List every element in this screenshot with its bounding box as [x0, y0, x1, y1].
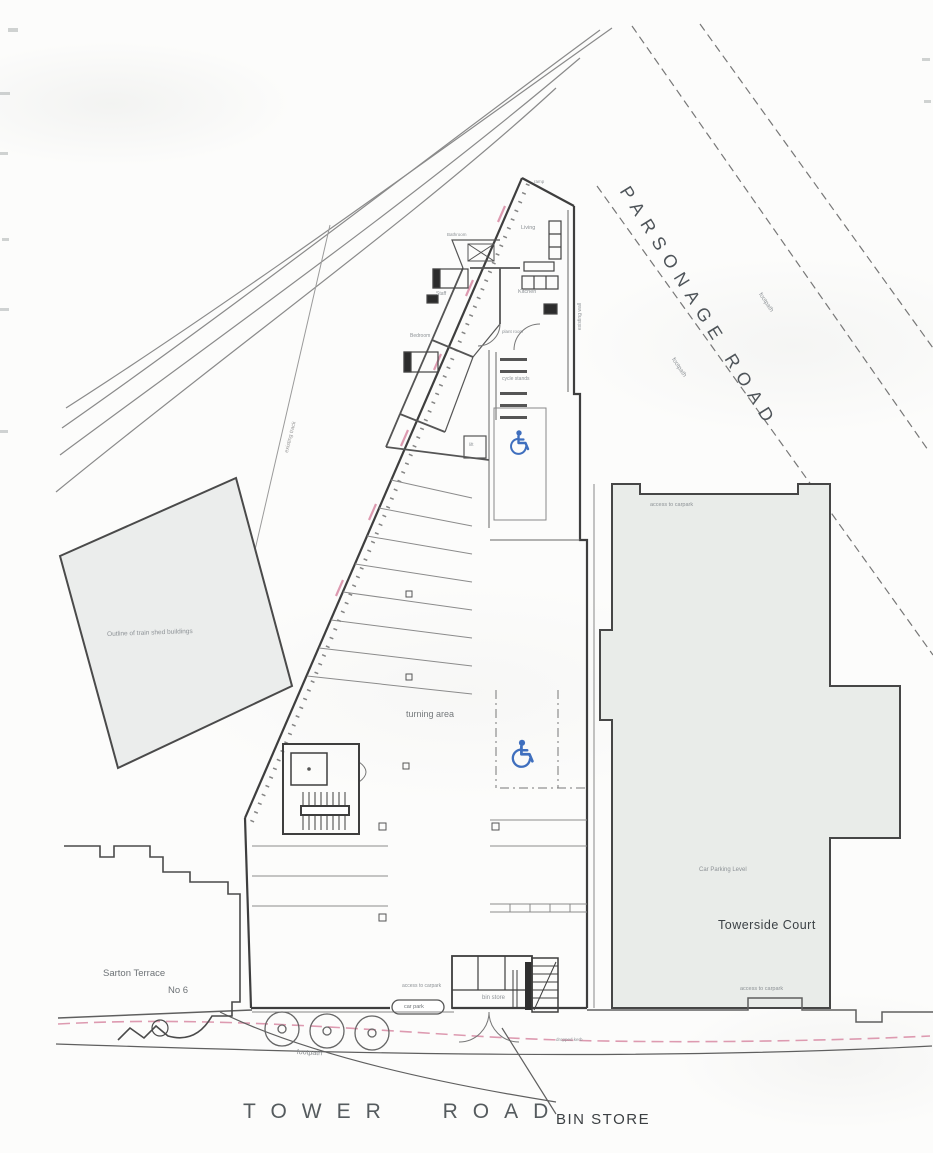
- boundary-along-road: [58, 1021, 930, 1041]
- tower-road-lines: [56, 998, 933, 1114]
- bin-store-callout: BIN STORE: [556, 1112, 650, 1129]
- wheelchair-icon: [511, 430, 528, 454]
- car-park-label: car park: [404, 1004, 424, 1010]
- cycle-stands-label: cycle stands: [502, 377, 530, 383]
- interior-walls: [386, 240, 520, 460]
- nw-wall-hatching: [251, 184, 528, 824]
- street-trees: [265, 1012, 389, 1050]
- footpath-edge: [56, 1044, 932, 1055]
- driveway-arc: [220, 1012, 556, 1102]
- room-plant-label: plant room: [502, 330, 523, 335]
- boundary-nw-marks: [336, 206, 505, 596]
- turning-area-label: turning area: [406, 710, 454, 720]
- apex-right-wall: [522, 178, 574, 206]
- lift-pod: [464, 436, 486, 458]
- room-kitchen-label: Kitchen: [518, 289, 536, 295]
- railway-lines: [56, 28, 612, 492]
- dropped-kerb-label: dropped kerb: [556, 1038, 583, 1043]
- door-swings: [359, 324, 540, 1042]
- existing-wall-label: existing wall: [578, 303, 584, 330]
- stairs: [301, 792, 349, 830]
- wheelchair-icon: [513, 740, 533, 767]
- room-staff-label: Staff: [436, 292, 446, 298]
- room-bathroom-label: Bathroom: [447, 233, 467, 238]
- cycle-stands: [500, 358, 527, 419]
- train-shed-outline: [60, 478, 292, 768]
- access-entrance-label: access to carpark: [402, 984, 441, 990]
- room-bedroom-label: Bedroom: [410, 334, 430, 340]
- sarton-terrace-number: No 6: [168, 986, 188, 996]
- bin-store-room-label: bin store: [482, 995, 505, 1002]
- room-living-label: Living: [521, 225, 535, 231]
- access-to-carpark-bottom-label: access to carpark: [740, 986, 783, 992]
- car-parking-level-label: Car Parking Level: [699, 867, 747, 874]
- plan-linework: [0, 0, 933, 1153]
- west-wall: [245, 818, 251, 1008]
- refuse-stairs: [513, 958, 558, 1012]
- ramp-label: ramp: [534, 180, 544, 185]
- stair-core: [283, 744, 359, 834]
- nw-boundary-wall: [245, 178, 522, 818]
- disabled-bay-1-outline: [494, 408, 546, 520]
- site-plan: PARSONAGE ROAD TOWER ROAD BIN STORE Towe…: [0, 0, 933, 1153]
- tower-road-label: TOWER ROAD: [243, 1100, 563, 1123]
- parking-bays-upper: [307, 480, 472, 694]
- column-markers: [379, 591, 499, 921]
- sarton-terrace-label: Sarton Terrace: [103, 969, 165, 979]
- disabled-bay-2-markings: [496, 690, 587, 788]
- footpath-label: footpath: [297, 1049, 323, 1058]
- access-to-carpark-top-label: access to carpark: [650, 502, 693, 508]
- room-lift-label: lift: [469, 443, 474, 448]
- towerside-court-label: Towerside Court: [718, 919, 816, 933]
